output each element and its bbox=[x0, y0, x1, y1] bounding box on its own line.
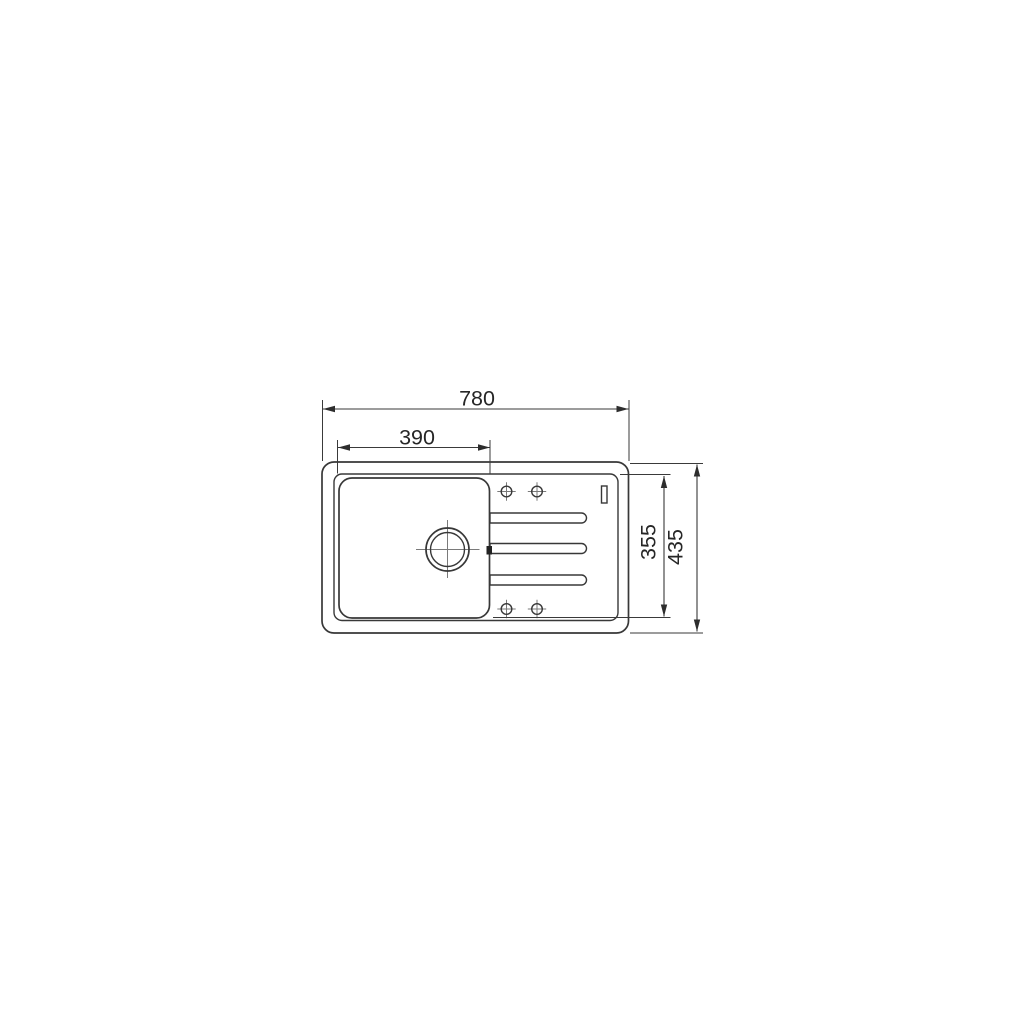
arrowhead-right-icon bbox=[478, 444, 490, 450]
sink-plan-view bbox=[322, 462, 629, 633]
arrowhead-left-icon bbox=[338, 444, 350, 450]
drawing-page: 780 390 355 435 bbox=[0, 0, 1024, 1024]
arrowhead-up-icon bbox=[661, 476, 667, 488]
dimension-overall-width: 780 bbox=[323, 387, 630, 462]
tap-hole-icon bbox=[528, 482, 546, 500]
tap-holes bbox=[497, 482, 546, 618]
sink-outer-edge bbox=[322, 462, 629, 633]
tap-hole-icon bbox=[528, 600, 546, 618]
sink-bowl bbox=[339, 478, 490, 618]
drainer-grooves bbox=[487, 513, 587, 585]
arrowhead-right-icon bbox=[617, 406, 629, 412]
tap-hole-icon bbox=[497, 600, 515, 618]
overflow-slot bbox=[602, 486, 608, 503]
dimension-label-780: 780 bbox=[459, 387, 495, 411]
drainer-groove bbox=[490, 513, 587, 523]
drainer-groove bbox=[490, 575, 587, 585]
sink-technical-drawing: 780 390 355 435 bbox=[0, 0, 1024, 1024]
arrowhead-up-icon bbox=[694, 465, 700, 477]
arrowhead-down-icon bbox=[661, 605, 667, 617]
dimension-label-390: 390 bbox=[399, 426, 435, 450]
drain-icon bbox=[416, 520, 480, 578]
arrowhead-down-icon bbox=[694, 620, 700, 632]
drainer-groove bbox=[490, 544, 587, 554]
dimension-bowl-width: 390 bbox=[338, 426, 491, 475]
sink-inner-rim bbox=[334, 474, 618, 621]
tap-hole-icon bbox=[497, 482, 515, 500]
dimension-label-435: 435 bbox=[664, 529, 688, 565]
arrowhead-left-icon bbox=[323, 406, 335, 412]
dimension-inner-depth: 355 bbox=[493, 475, 671, 618]
overflow-channel bbox=[487, 546, 493, 555]
dimension-label-355: 355 bbox=[637, 524, 661, 560]
